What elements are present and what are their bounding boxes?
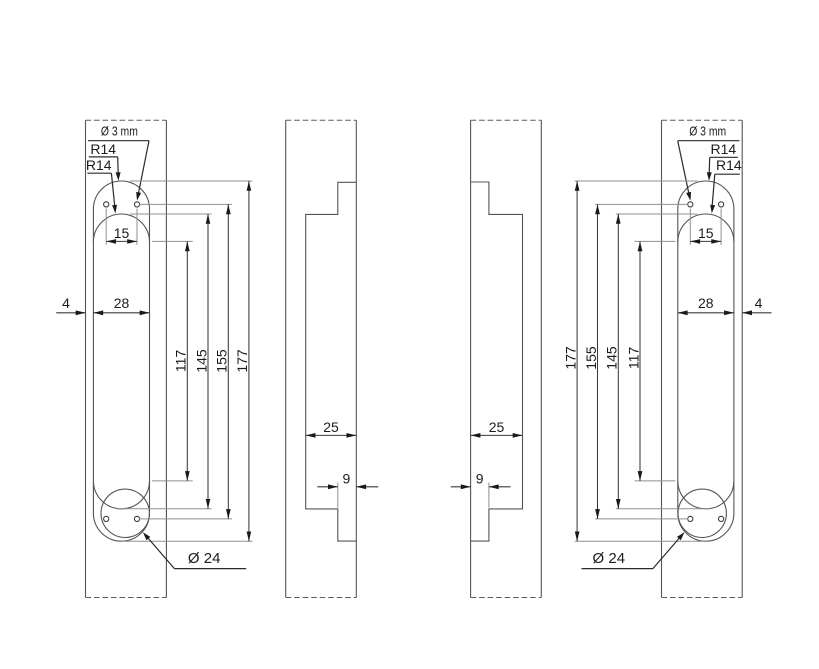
svg-text:117: 117 [625,347,641,370]
svg-text:177: 177 [562,346,578,370]
svg-text:28: 28 [698,295,714,311]
svg-text:145: 145 [604,346,620,370]
svg-text:R14: R14 [90,141,116,157]
svg-text:155: 155 [583,346,599,370]
svg-text:R14: R14 [711,141,737,157]
svg-text:Ø 3 mm: Ø 3 mm [689,124,726,139]
svg-text:15: 15 [698,225,714,241]
svg-text:28: 28 [114,295,130,311]
svg-text:155: 155 [214,349,230,373]
svg-text:9: 9 [476,471,484,487]
svg-text:Ø 3 mm: Ø 3 mm [101,124,138,139]
svg-text:Ø 24: Ø 24 [188,550,221,567]
svg-text:145: 145 [193,349,209,373]
svg-text:15: 15 [114,225,130,241]
svg-text:25: 25 [489,419,505,435]
svg-text:9: 9 [343,471,351,487]
svg-text:Ø 24: Ø 24 [593,550,626,567]
svg-text:R14: R14 [716,157,742,173]
svg-text:25: 25 [323,419,339,435]
svg-text:R14: R14 [86,157,112,173]
svg-text:177: 177 [234,349,250,373]
svg-text:117: 117 [173,350,189,373]
svg-text:4: 4 [755,295,763,311]
svg-text:4: 4 [62,295,70,311]
